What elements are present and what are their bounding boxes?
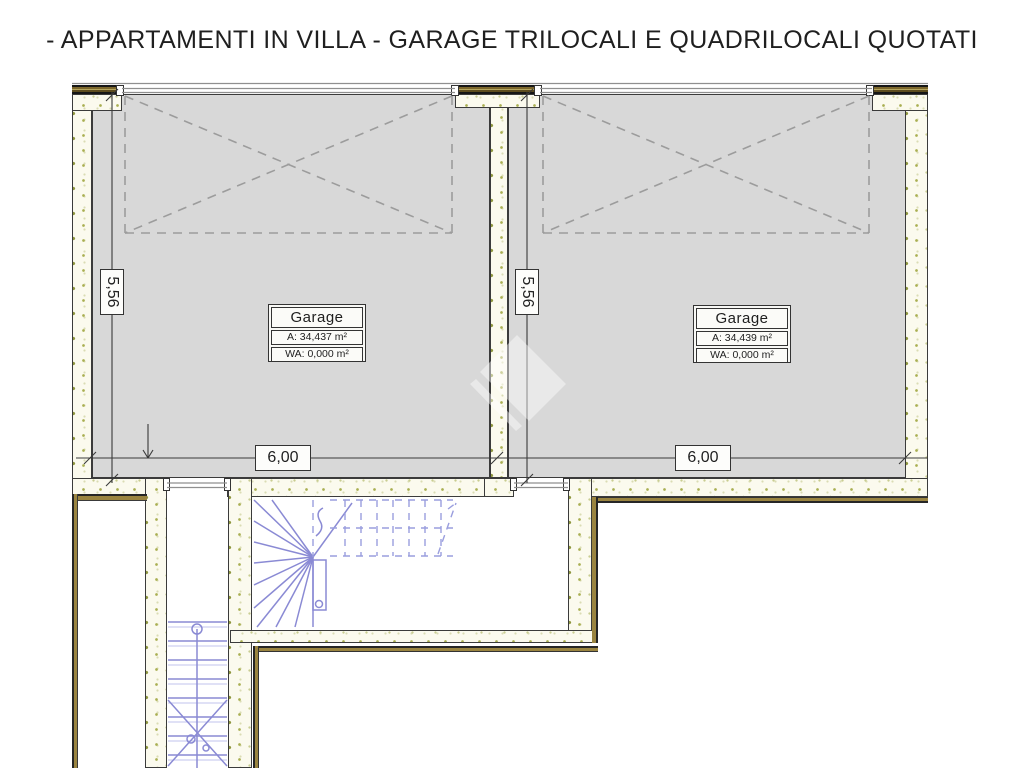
- dim-depth-right: 5,56: [515, 269, 539, 315]
- dim-width-right: 6,00: [675, 445, 731, 471]
- winder-stair: [254, 500, 456, 627]
- garage-right-door-swing-dashed: [543, 96, 869, 233]
- plan-linework: [0, 0, 1024, 768]
- garage-left-area: A: 34,437 m²: [271, 330, 363, 345]
- dimension-lines: [76, 89, 928, 486]
- garage-left-name: Garage: [271, 307, 363, 328]
- garage-right-label: Garage A: 34,439 m² WA: 0,000 m²: [693, 305, 791, 363]
- garage-left-label: Garage A: 34,437 m² WA: 0,000 m²: [268, 304, 366, 362]
- floor-plan-canvas: - APPARTAMENTI IN VILLA - GARAGE TRILOCA…: [0, 0, 1024, 768]
- dim-width-left: 6,00: [255, 445, 311, 471]
- garage-right-area: A: 34,439 m²: [696, 331, 788, 346]
- dim-depth-left: 5,56: [100, 269, 124, 315]
- watermark-logo: [470, 335, 566, 431]
- garage-right-name: Garage: [696, 308, 788, 329]
- garage-left-door-swing-dashed: [125, 96, 452, 233]
- garage-left-wa: WA: 0,000 m²: [271, 347, 363, 362]
- front-wall-face-lines: [72, 84, 928, 488]
- garage-right-wa: WA: 0,000 m²: [696, 348, 788, 363]
- straight-stair-flight: [168, 622, 227, 768]
